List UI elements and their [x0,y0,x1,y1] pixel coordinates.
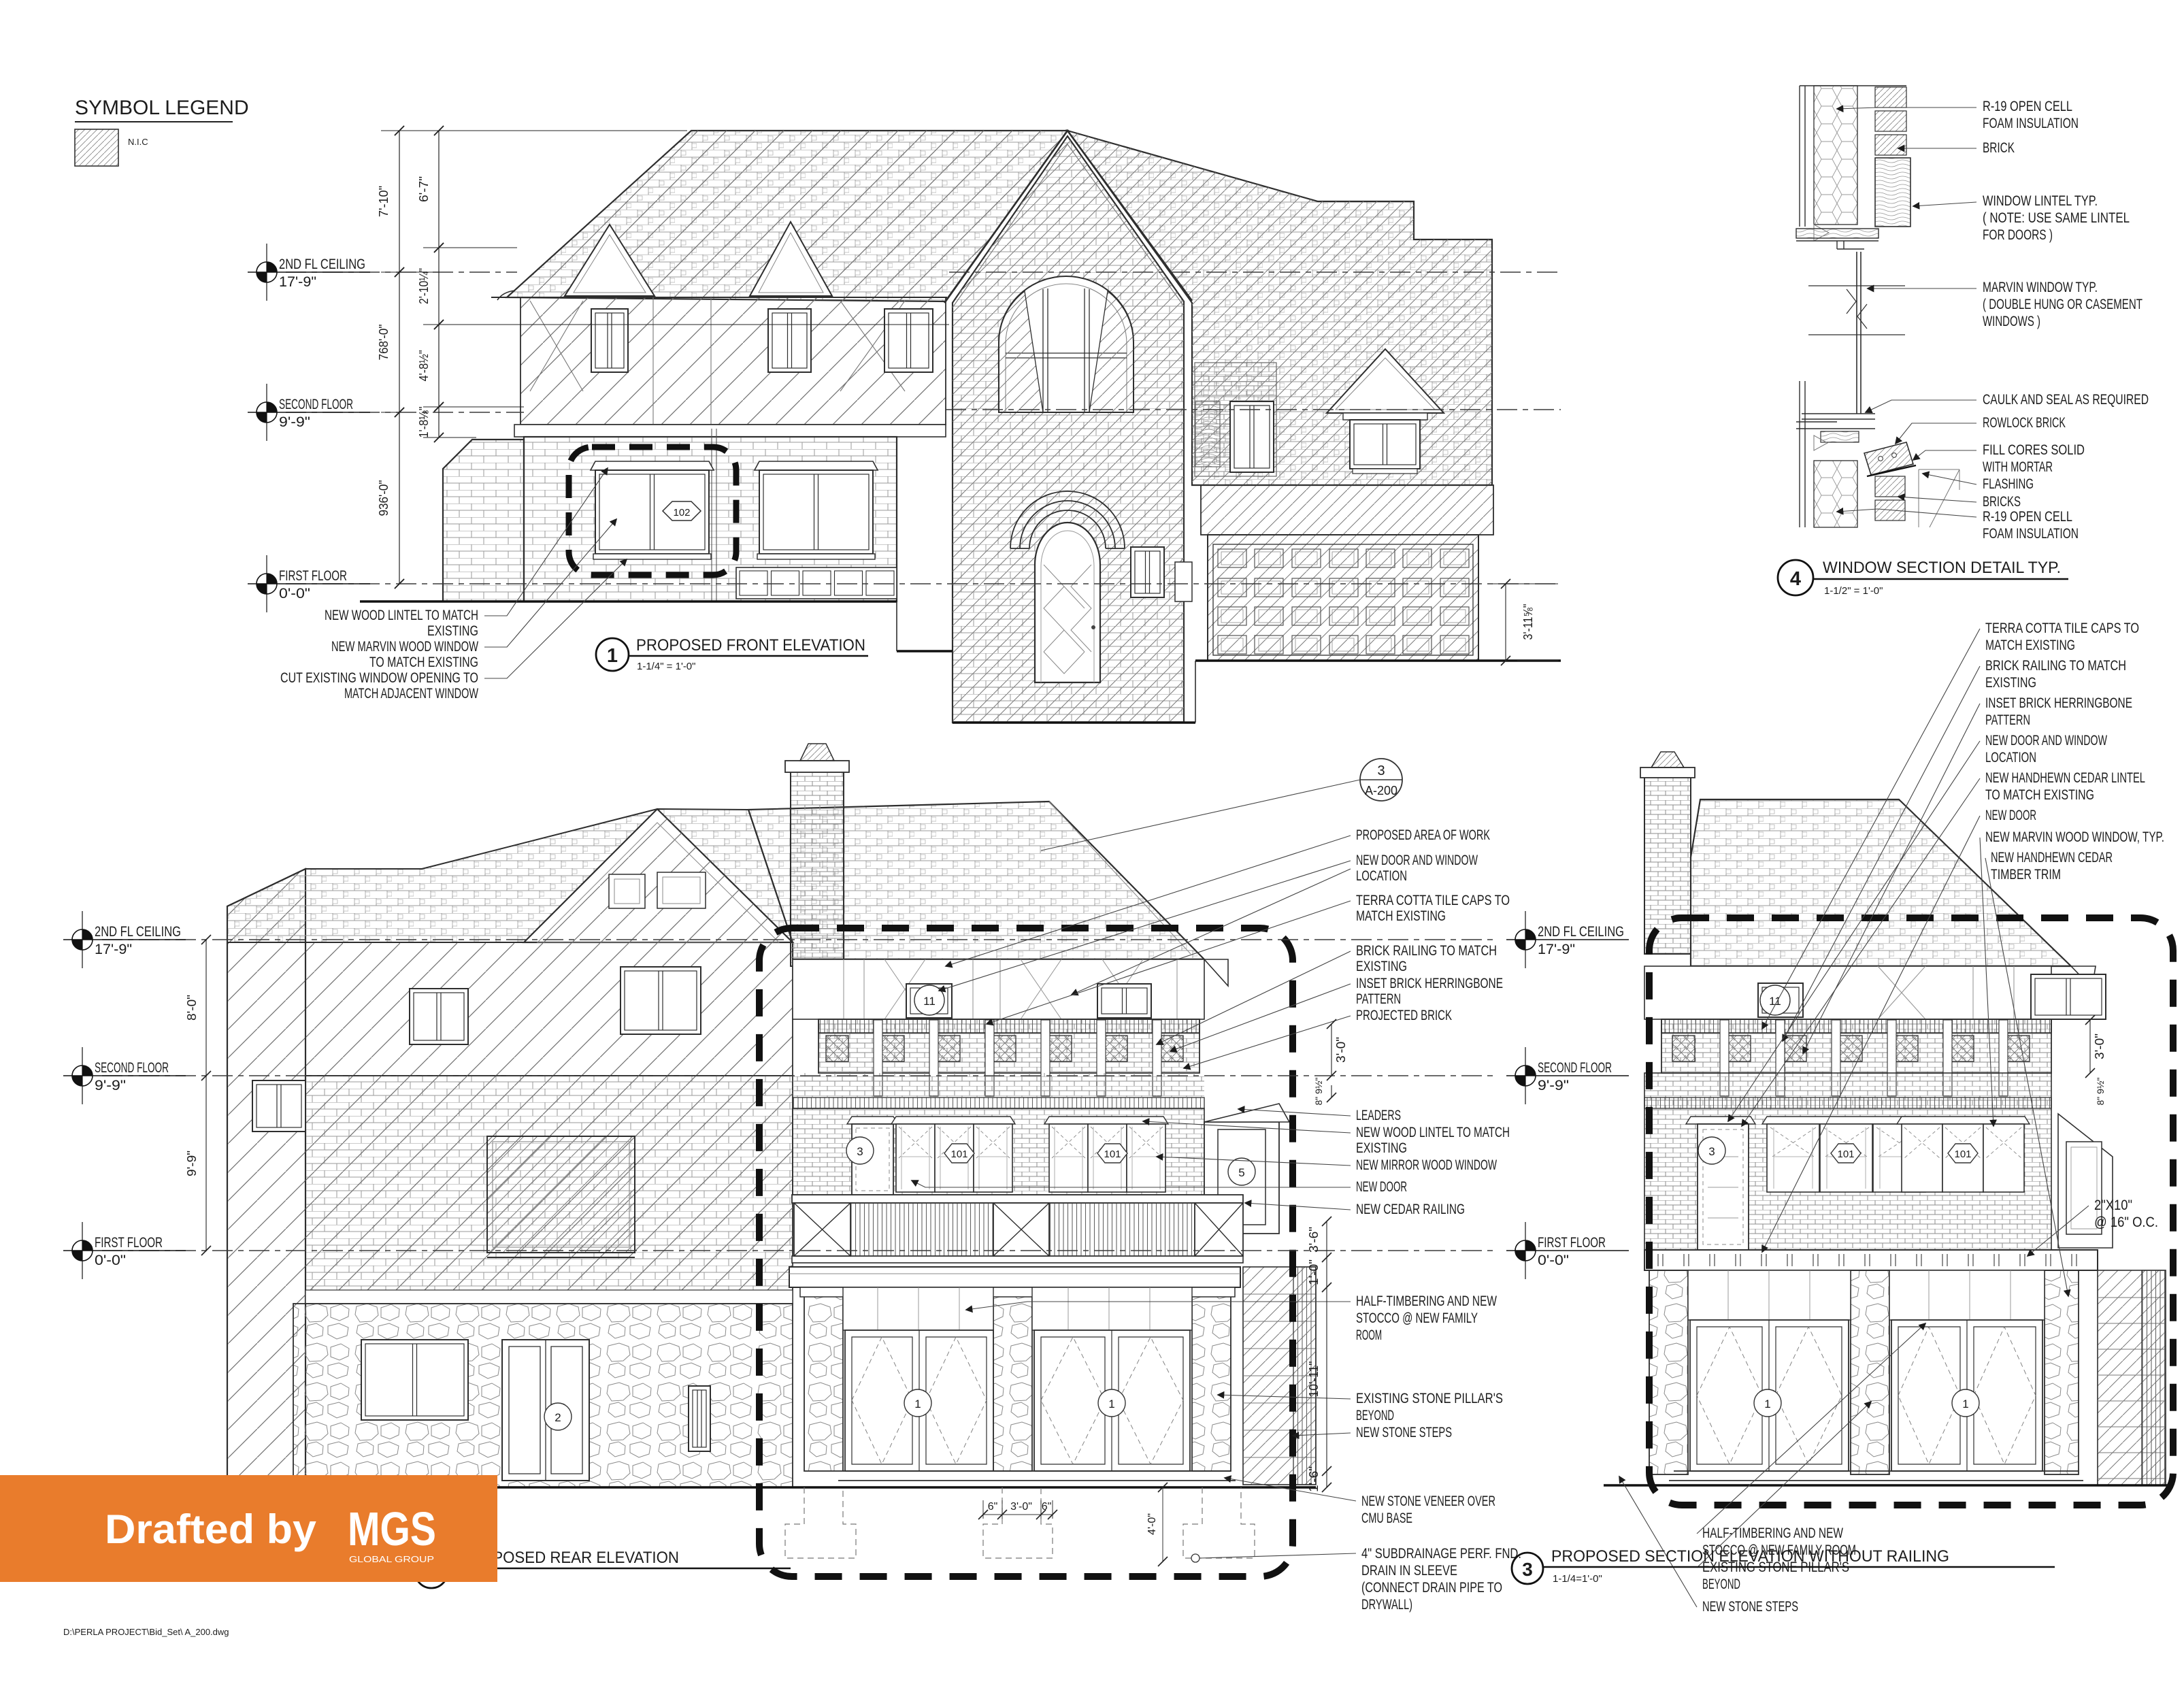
svg-text:17'-9": 17'-9" [279,274,316,290]
svg-text:PATTERN: PATTERN [1356,991,1401,1007]
svg-text:ROOM: ROOM [1356,1327,1382,1343]
svg-text:PROPOSED AREA OF WORK: PROPOSED AREA OF WORK [1356,827,1490,843]
svg-text:PROPOSED SECTION ELEVATION WI: PROPOSED SECTION ELEVATION WITHOUT RAILI… [1551,1547,1949,1566]
svg-text:936'-0": 936'-0" [377,480,391,516]
svg-text:0'-0": 0'-0" [1538,1252,1569,1268]
svg-text:1-1/4" = 1'-0": 1-1/4" = 1'-0" [637,661,695,672]
svg-text:NEW STONE STEPS: NEW STONE STEPS [1702,1598,1798,1615]
svg-text:7'-10": 7'-10" [377,186,391,217]
svg-text:6": 6" [1042,1501,1052,1513]
svg-text:101: 101 [1954,1149,1971,1160]
svg-text:10'-11": 10'-11" [1307,1361,1321,1398]
svg-text:3: 3 [1522,1559,1533,1580]
svg-text:FLASHING: FLASHING [1983,476,2034,492]
svg-text:N.I.C: N.I.C [128,137,148,147]
svg-text:NEW HANDHEWN CEDAR: NEW HANDHEWN CEDAR [1991,849,2113,865]
svg-text:3'-0": 3'-0" [1334,1037,1348,1063]
svg-text:3'-0": 3'-0" [2093,1034,2106,1059]
svg-text:6": 6" [988,1501,998,1513]
svg-text:TO MATCH EXISTING: TO MATCH EXISTING [1985,787,2094,803]
svg-text:R-19 OPEN CELL: R-19 OPEN CELL [1983,98,2072,114]
svg-text:NEW WOOD LINTEL TO MATCH: NEW WOOD LINTEL TO MATCH [325,607,478,623]
svg-text:TO MATCH EXISTING: TO MATCH EXISTING [369,654,478,670]
svg-text:1-1/4=1'-0": 1-1/4=1'-0" [1553,1573,1602,1585]
svg-text:@ 16" O.C.: @ 16" O.C. [2094,1214,2158,1230]
svg-text:9'-9": 9'-9" [279,414,310,430]
svg-text:2: 2 [555,1411,561,1424]
svg-text:101: 101 [950,1149,967,1160]
svg-text:MATCH EXISTING: MATCH EXISTING [1356,908,1446,924]
svg-text:GLOBAL GROUP: GLOBAL GROUP [349,1555,434,1564]
svg-text:WINDOW LINTEL TYP.: WINDOW LINTEL TYP. [1983,193,2098,209]
svg-text:1-1/2" = 1'-0": 1-1/2" = 1'-0" [1824,585,1883,597]
svg-text:NEW DOOR AND WINDOW: NEW DOOR AND WINDOW [1356,852,1478,868]
svg-text:768'-0": 768'-0" [377,325,391,361]
svg-text:NEW WOOD LINTEL TO MATCH: NEW WOOD LINTEL TO MATCH [1356,1124,1510,1140]
svg-text:NEW MARVIN WOOD WINDOW, TYP.: NEW MARVIN WOOD WINDOW, TYP. [1985,829,2164,845]
svg-text:MATCH EXISTING: MATCH EXISTING [1985,637,2075,653]
svg-text:9'-9": 9'-9" [95,1077,126,1093]
svg-text:NEW DOOR: NEW DOOR [1356,1178,1407,1195]
svg-text:ROWLOCK BRICK: ROWLOCK BRICK [1983,414,2066,431]
svg-text:4: 4 [1790,568,1801,590]
svg-text:INSET BRICK HERRINGBONE: INSET BRICK HERRINGBONE [1985,695,2132,711]
svg-text:FOR DOORS ): FOR DOORS ) [1983,227,2053,243]
svg-text:SECOND FLOOR: SECOND FLOOR [279,396,353,412]
svg-text:1'-6": 1'-6" [1307,1466,1321,1492]
svg-text:3'-11⅝": 3'-11⅝" [1521,604,1535,640]
svg-text:5: 5 [1238,1166,1244,1179]
svg-text:FIRST FLOOR: FIRST FLOOR [279,567,347,584]
svg-text:6'-7": 6'-7" [417,176,431,202]
svg-text:1: 1 [914,1398,921,1410]
svg-text:9'-9": 9'-9" [185,1151,199,1176]
svg-text:2'-10¼": 2'-10¼" [417,268,431,304]
svg-text:4'-0": 4'-0" [1146,1513,1158,1535]
svg-text:PROJECTED BRICK: PROJECTED BRICK [1356,1007,1452,1023]
svg-text:TERRA COTTA TILE CAPS TO: TERRA COTTA TILE CAPS TO [1985,620,2139,636]
svg-text:NEW MIRROR WOOD WINDOW: NEW MIRROR WOOD WINDOW [1356,1157,1497,1173]
svg-text:NEW STONE VENEER OVER: NEW STONE VENEER OVER [1361,1493,1495,1509]
svg-text:102: 102 [673,507,690,518]
svg-text:1: 1 [1764,1398,1770,1410]
svg-text:EXISTING: EXISTING [1985,674,2036,691]
svg-text:8'-0": 8'-0" [185,995,199,1021]
svg-text:A-200: A-200 [1365,784,1397,797]
svg-text:0'-0": 0'-0" [279,585,310,601]
svg-text:1: 1 [607,645,618,667]
svg-text:1: 1 [1108,1398,1114,1410]
svg-text:HALF-TIMBERING AND NEW: HALF-TIMBERING AND NEW [1356,1293,1497,1309]
svg-text:BEYOND: BEYOND [1356,1407,1394,1423]
svg-text:LOCATION: LOCATION [1356,868,1407,884]
svg-text:8" 9½": 8" 9½" [1313,1077,1324,1105]
svg-text:FOAM INSULATION: FOAM INSULATION [1983,115,2079,131]
svg-text:R-19 OPEN CELL: R-19 OPEN CELL [1983,508,2072,525]
svg-text:BRICK: BRICK [1983,139,2015,156]
svg-text:CUT EXISTING WINDOW OPENING T: CUT EXISTING WINDOW OPENING TO [280,670,478,686]
svg-text:1'-0": 1'-0" [1307,1259,1321,1285]
svg-text:1: 1 [1962,1398,1968,1410]
svg-text:INSET BRICK HERRINGBONE: INSET BRICK HERRINGBONE [1356,975,1503,991]
svg-text:SECOND FLOOR: SECOND FLOOR [1538,1059,1612,1076]
svg-text:BEYOND: BEYOND [1702,1576,1740,1592]
svg-text:MGS: MGS [348,1502,436,1555]
svg-text:101: 101 [1837,1149,1854,1160]
svg-text:2ND FL CEILING: 2ND FL CEILING [279,256,365,272]
svg-text:( NOTE: USE SAME LINTEL: ( NOTE: USE SAME LINTEL [1983,210,2130,226]
svg-text:3: 3 [1708,1145,1715,1158]
svg-text:DRAIN IN SLEEVE: DRAIN IN SLEEVE [1361,1562,1457,1579]
svg-text:NEW MARVIN WOOD WINDOW: NEW MARVIN WOOD WINDOW [331,638,478,655]
svg-text:( DOUBLE HUNG OR CASEMENT: ( DOUBLE HUNG OR CASEMENT [1983,296,2142,312]
svg-text:0'-0": 0'-0" [95,1252,126,1268]
svg-text:FOAM INSULATION: FOAM INSULATION [1983,525,2079,542]
svg-text:Drafted by: Drafted by [105,1506,317,1552]
svg-text:MARVIN WINDOW TYP.: MARVIN WINDOW TYP. [1983,279,2098,295]
svg-text:17'-9": 17'-9" [95,941,132,957]
svg-text:NEW DOOR AND WINDOW: NEW DOOR AND WINDOW [1985,732,2107,748]
svg-text:3: 3 [857,1145,863,1158]
svg-text:SYMBOL LEGEND: SYMBOL LEGEND [75,97,249,119]
svg-text:WINDOW SECTION DETAIL TYP.: WINDOW SECTION DETAIL TYP. [1823,559,2061,577]
svg-text:FILL CORES SOLID: FILL CORES SOLID [1983,442,2085,458]
svg-text:LOCATION: LOCATION [1985,749,2036,765]
svg-text:STOCCO @ NEW FAMILY: STOCCO @ NEW FAMILY [1356,1310,1478,1326]
svg-text:17'-9": 17'-9" [1538,941,1575,957]
svg-text:TIMBER TRIM: TIMBER TRIM [1991,866,2061,882]
svg-text:4'-8½": 4'-8½" [417,350,431,382]
svg-text:(CONNECT DRAIN PIPE TO: (CONNECT DRAIN PIPE TO [1361,1579,1502,1596]
svg-text:8" 9½": 8" 9½" [2095,1077,2106,1105]
svg-text:2"X10": 2"X10" [2094,1197,2132,1213]
svg-text:DRYWALL): DRYWALL) [1361,1596,1412,1613]
svg-text:4" SUBDRAINAGE PERF. FND.: 4" SUBDRAINAGE PERF. FND. [1361,1545,1521,1562]
svg-text:CAULK AND SEAL AS REQUIRED: CAULK AND SEAL AS REQUIRED [1983,391,2149,408]
svg-text:PATTERN: PATTERN [1985,712,2030,728]
svg-text:CMU BASE: CMU BASE [1361,1510,1412,1526]
svg-text:11: 11 [923,995,936,1008]
svg-text:3'-6": 3'-6" [1307,1227,1321,1253]
svg-text:NEW CEDAR RAILING: NEW CEDAR RAILING [1356,1201,1465,1217]
svg-text:NEW HANDHEWN CEDAR LINTEL: NEW HANDHEWN CEDAR LINTEL [1985,770,2145,786]
svg-text:2ND FL CEILING: 2ND FL CEILING [1538,923,1624,940]
svg-text:EXISTING: EXISTING [427,623,478,639]
svg-text:WITH MORTAR: WITH MORTAR [1983,459,2053,475]
svg-text:BRICKS: BRICKS [1983,493,2021,510]
svg-text:MATCH ADJACENT WINDOW: MATCH ADJACENT WINDOW [344,685,478,701]
svg-text:SECOND FLOOR: SECOND FLOOR [95,1059,169,1076]
svg-text:EXISTING: EXISTING [1356,958,1407,974]
svg-text:EXISTING: EXISTING [1356,1140,1407,1156]
svg-text:EXISTING STONE PILLAR'S: EXISTING STONE PILLAR'S [1356,1390,1503,1406]
svg-text:3: 3 [1377,763,1385,778]
svg-text:NEW STONE STEPS: NEW STONE STEPS [1356,1424,1452,1440]
svg-text:LEADERS: LEADERS [1356,1107,1401,1123]
svg-text:9'-9": 9'-9" [1538,1077,1569,1093]
svg-text:BRICK RAILING TO MATCH: BRICK RAILING TO MATCH [1356,942,1497,959]
svg-text:WINDOWS ): WINDOWS ) [1983,313,2040,329]
svg-text:FIRST FLOOR: FIRST FLOOR [95,1234,163,1251]
svg-text:HALF-TIMBERING AND NEW: HALF-TIMBERING AND NEW [1702,1525,1843,1541]
svg-text:TERRA COTTA TILE CAPS TO: TERRA COTTA TILE CAPS TO [1356,892,1510,908]
svg-text:BRICK RAILING TO MATCH: BRICK RAILING TO MATCH [1985,657,2126,674]
svg-text:PROPOSED FRONT ELEVATION: PROPOSED FRONT ELEVATION [636,636,865,655]
svg-text:D:\PERLA PROJECT\Bid_Set\ A_20: D:\PERLA PROJECT\Bid_Set\ A_200.dwg [63,1627,229,1637]
svg-text:3'-0": 3'-0" [1010,1501,1032,1513]
svg-text:NEW DOOR: NEW DOOR [1985,807,2036,823]
svg-text:FIRST FLOOR: FIRST FLOOR [1538,1234,1606,1251]
svg-text:1'-8⅛": 1'-8⅛" [417,407,431,438]
svg-text:2ND FL CEILING: 2ND FL CEILING [95,923,181,940]
svg-text:101: 101 [1104,1149,1121,1160]
